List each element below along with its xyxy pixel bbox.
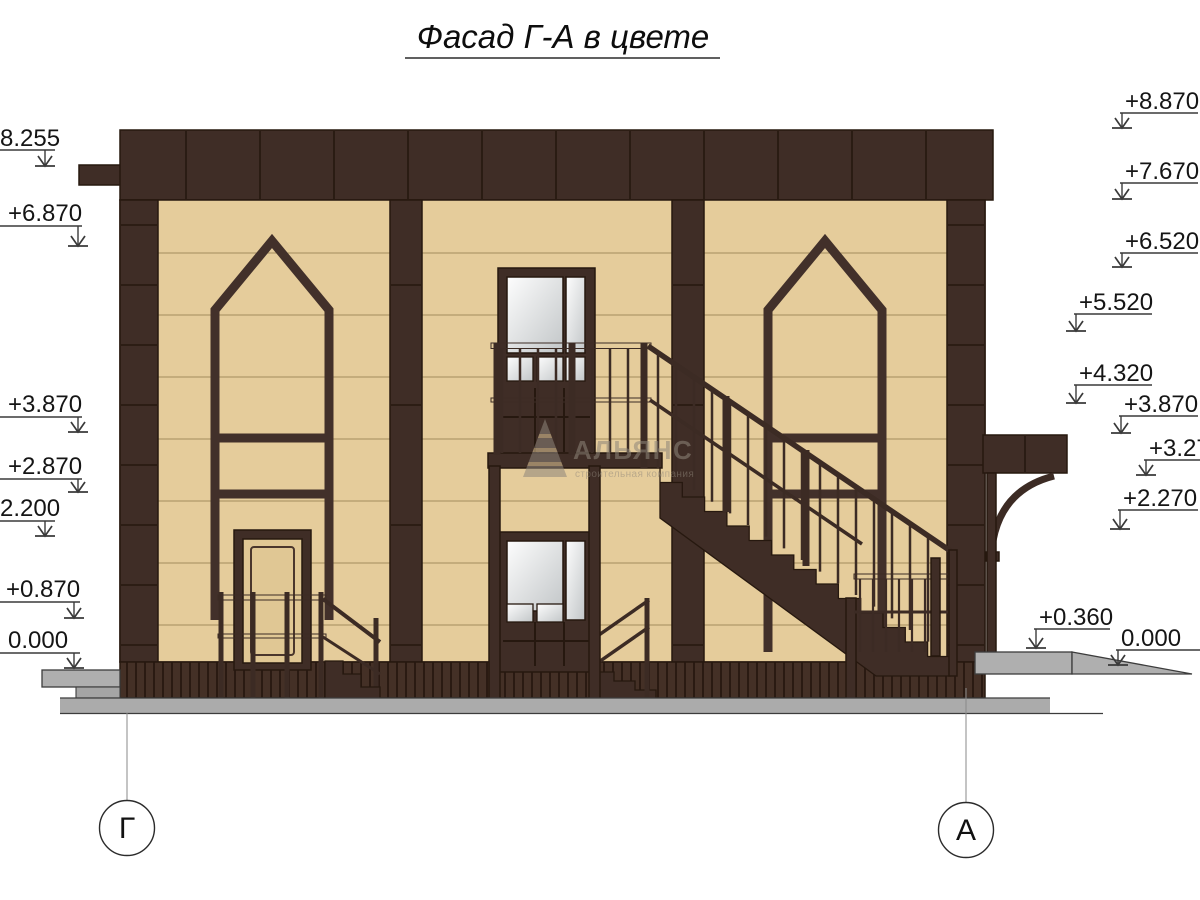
elevation-value: 0.000 [8, 627, 68, 654]
landing-post-left [489, 466, 500, 702]
elevation-value: +6.520 [1125, 228, 1199, 255]
elevation-marks-right: +8.870+7.670+6.520+5.520+4.320+3.870+3.2… [1026, 88, 1200, 665]
elevation-value: +3.870 [1124, 391, 1198, 418]
elevation-value: +4.320 [1079, 360, 1153, 387]
building-facade [79, 130, 1067, 702]
door-unit-lower [498, 532, 595, 672]
sidewalk-main [60, 698, 1050, 713]
watermark-name: АЛЬЯНС [573, 435, 693, 465]
elevation-mark-right-7: +2.270 [1110, 485, 1198, 529]
watermark-tagline: строительная компания [575, 469, 694, 480]
elevation-value: +7.670 [1125, 158, 1199, 185]
elevation-mark-right-9: 0.000 [1108, 625, 1200, 665]
elevation-mark-left-6: 0.000 [0, 627, 84, 668]
elevation-marks-left: +8.255+6.870+3.870+2.870+2.200+0.8700.00… [0, 125, 88, 668]
drawing-title: Фасад Г-А в цвете [417, 18, 710, 55]
axis-label-a: А [956, 814, 976, 847]
elevation-value: +5.520 [1079, 289, 1153, 316]
elevation-value: +8.255 [0, 125, 60, 152]
landing-post-right [589, 466, 600, 702]
elevation-mark-left-0: +8.255 [0, 125, 60, 166]
axis-label-g: Г [119, 812, 135, 845]
elevation-mark-right-1: +7.670 [1112, 158, 1199, 199]
elevation-value: +8.870 [1125, 88, 1199, 115]
facade-elevation-drawing: Г А АЛЬЯНС строительная компания +8.255+… [0, 0, 1200, 900]
elevation-mark-left-1: +6.870 [0, 200, 88, 246]
elevation-value: +0.870 [6, 576, 80, 603]
drawing-title-block: Фасад Г-А в цвете [405, 18, 720, 58]
elevation-mark-right-3: +5.520 [1066, 289, 1153, 331]
elevation-value: +3.870 [8, 391, 82, 418]
elevation-mark-left-5: +0.870 [0, 576, 84, 618]
axis-g: Г [100, 713, 155, 856]
sidewalk-upper-left [42, 670, 120, 687]
elevation-mark-left-4: +2.200 [0, 495, 60, 536]
elevation-value: +2.200 [0, 495, 60, 522]
elevation-mark-right-6: +3.270 [1136, 435, 1200, 475]
elevation-mark-right-2: +6.520 [1112, 228, 1199, 267]
elevation-value: 0.000 [1121, 625, 1181, 652]
elevation-value: +0.360 [1039, 604, 1113, 631]
elevation-value: +2.270 [1123, 485, 1197, 512]
sidewalk-step-left [76, 687, 120, 698]
elevation-mark-right-8: +0.360 [1026, 604, 1113, 648]
elevation-mark-left-3: +2.870 [0, 453, 88, 492]
elevation-mark-left-2: +3.870 [0, 391, 88, 432]
platform-right [975, 652, 1072, 674]
cornice-beam [79, 165, 121, 185]
ramp-right [1072, 652, 1192, 674]
elevation-value: +6.870 [8, 200, 82, 227]
elevation-value: +3.270 [1149, 435, 1200, 462]
elevation-mark-right-5: +3.870 [1111, 391, 1198, 433]
elevation-mark-right-0: +8.870 [1112, 88, 1199, 128]
elevation-value: +2.870 [8, 453, 82, 480]
